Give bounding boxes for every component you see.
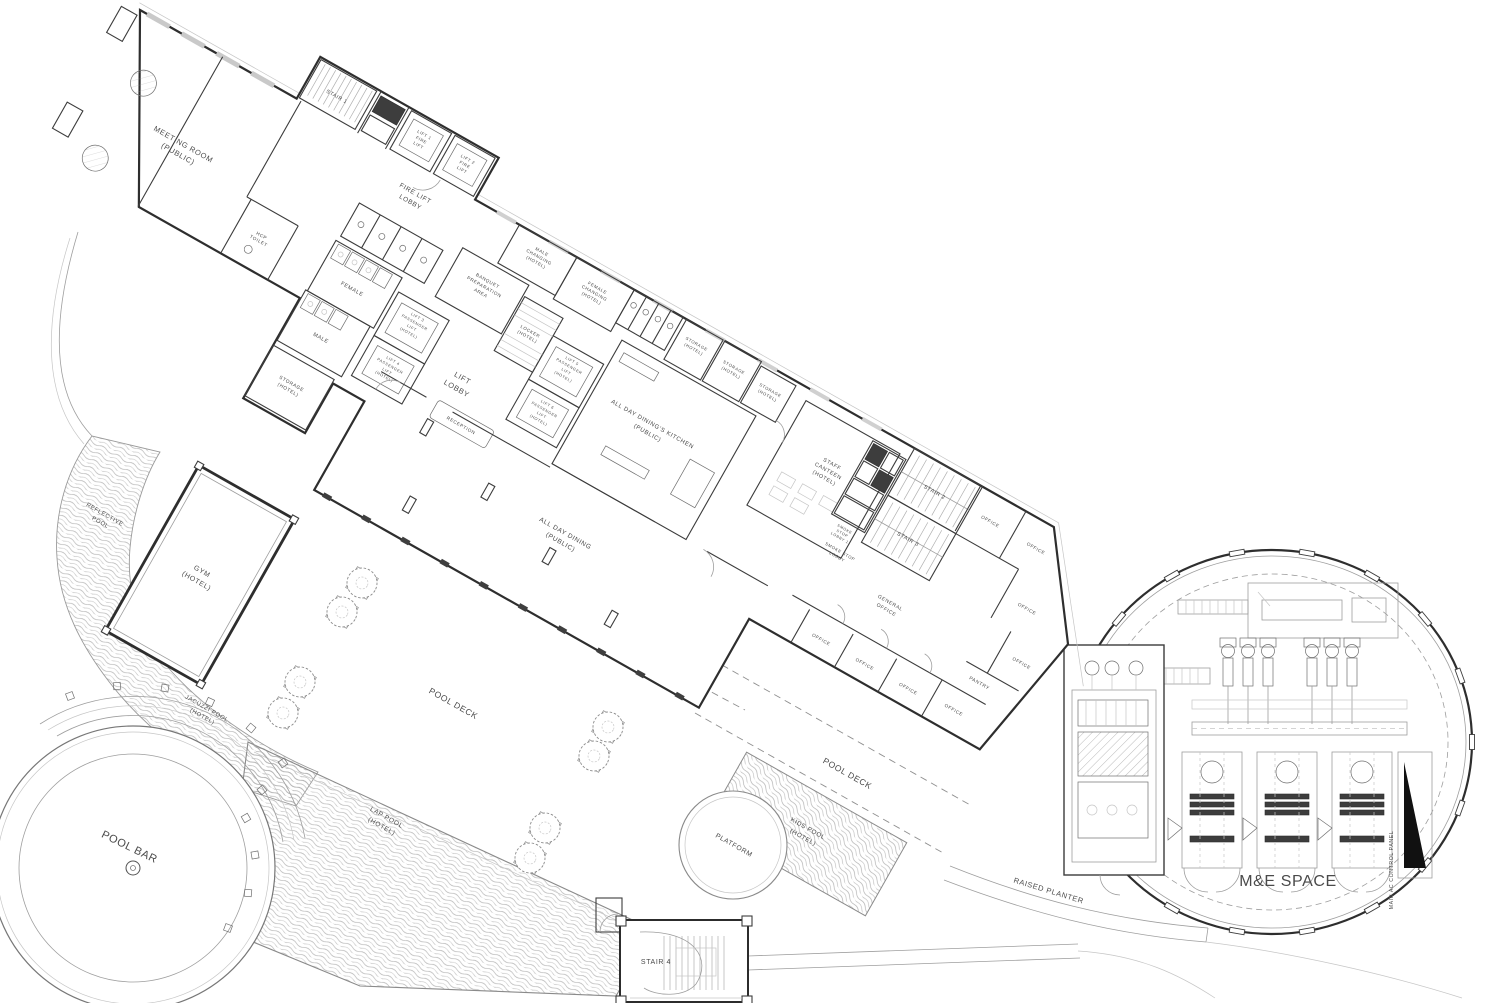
tree-symbol <box>280 662 321 703</box>
svg-text:POOL DECK: POOL DECK <box>427 686 480 722</box>
svg-text:RAISED PLANTER: RAISED PLANTER <box>1013 876 1085 906</box>
svg-text:POOL DECK: POOL DECK <box>821 756 874 792</box>
tree-symbol <box>342 563 383 604</box>
svg-text:M&E SPACE: M&E SPACE <box>1239 873 1337 890</box>
tree-symbol <box>322 592 363 633</box>
floor-plan-canvas: POOL BAR <box>0 0 1500 1003</box>
tree-symbol <box>525 808 566 849</box>
pool-bar: POOL BAR <box>0 682 305 1003</box>
svg-text:MAIN AC CONTROL PANEL: MAIN AC CONTROL PANEL <box>1389 831 1395 910</box>
lap-pool <box>224 742 654 996</box>
tree-symbol <box>263 693 304 734</box>
deck-west-edge <box>59 232 92 436</box>
switchboard-room <box>1064 645 1164 895</box>
walkway-lines <box>748 942 1462 998</box>
label-me-space: M&E SPACE <box>1239 873 1337 890</box>
deck-west-edge-inner <box>51 238 84 444</box>
label-stair-4: STAIR 4 <box>641 959 671 966</box>
label-pool-deck-right: POOL DECK <box>821 756 874 792</box>
label-main-ac-panel: MAIN AC CONTROL PANEL <box>1389 831 1395 910</box>
label-raised-planter: RAISED PLANTER <box>1013 876 1085 906</box>
floor-plan-sheet: POOL BAR <box>0 0 1500 1003</box>
me-space-oval: MAIN AC CONTROL PANEL M&E SPACE <box>1064 549 1475 935</box>
label-pool-deck-left: POOL DECK <box>427 686 480 722</box>
